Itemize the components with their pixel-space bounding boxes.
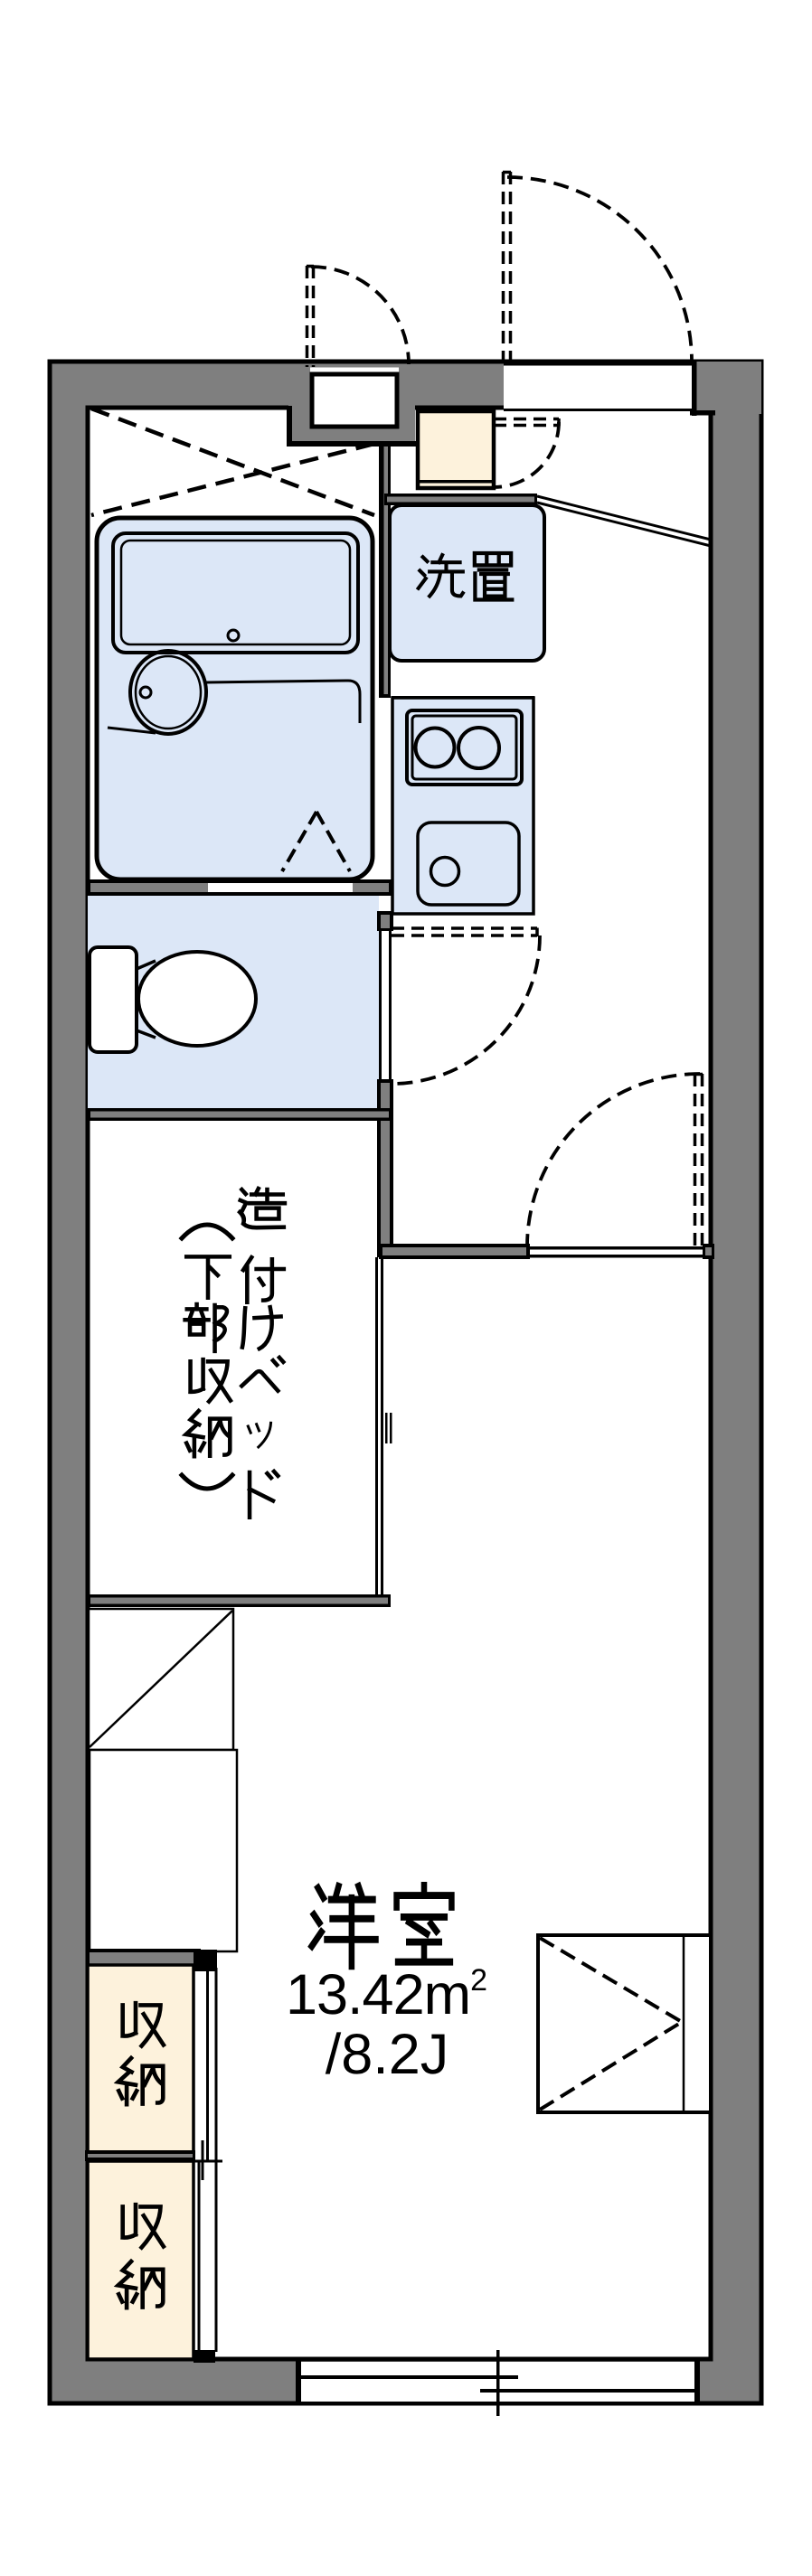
svg-text:13.42m2: 13.42m2 xyxy=(286,1963,486,2026)
svg-text:/8.2J: /8.2J xyxy=(326,2023,449,2086)
